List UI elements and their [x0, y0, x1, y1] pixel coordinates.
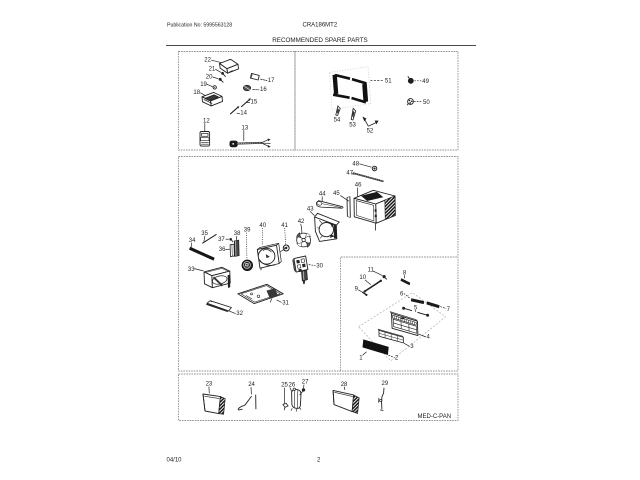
svg-text:15: 15: [251, 99, 258, 105]
svg-text:19: 19: [200, 82, 207, 88]
svg-text:29: 29: [382, 381, 389, 387]
svg-text:46: 46: [355, 183, 362, 189]
svg-text:23: 23: [206, 382, 213, 388]
svg-text:13: 13: [242, 125, 249, 131]
svg-text:39: 39: [244, 228, 251, 234]
svg-text:22: 22: [204, 58, 211, 64]
svg-text:18: 18: [193, 90, 200, 96]
svg-text:32: 32: [236, 311, 243, 317]
svg-text:38: 38: [234, 231, 241, 237]
svg-text:42: 42: [298, 219, 305, 225]
svg-text:31: 31: [282, 301, 289, 307]
svg-text:26: 26: [289, 383, 296, 389]
svg-text:36: 36: [219, 247, 226, 253]
svg-text:30: 30: [316, 263, 323, 269]
svg-text:45: 45: [333, 191, 340, 197]
svg-text:Publication No: 5995563128: Publication No: 5995563128: [167, 23, 232, 29]
svg-text:17: 17: [268, 78, 275, 84]
svg-text:04/10: 04/10: [167, 458, 183, 464]
svg-text:54: 54: [334, 118, 341, 124]
svg-text:50: 50: [423, 100, 430, 106]
svg-text:21: 21: [209, 67, 216, 73]
svg-text:48: 48: [352, 162, 359, 168]
svg-text:41: 41: [281, 223, 288, 229]
svg-text:24: 24: [248, 382, 255, 388]
svg-text:20: 20: [206, 75, 213, 81]
svg-text:25: 25: [281, 383, 288, 389]
svg-text:RECOMMENDED SPARE PARTS: RECOMMENDED SPARE PARTS: [272, 37, 368, 44]
svg-text:49: 49: [422, 79, 429, 85]
svg-text:53: 53: [349, 122, 356, 128]
svg-text:12: 12: [203, 119, 210, 125]
svg-text:27: 27: [302, 380, 309, 386]
svg-text:11: 11: [368, 268, 375, 274]
svg-text:52: 52: [367, 129, 374, 135]
svg-text:37: 37: [218, 237, 225, 243]
svg-text:CRA186MT2: CRA186MT2: [303, 23, 338, 29]
svg-text:40: 40: [259, 223, 266, 229]
svg-text:MED-C-PAN: MED-C-PAN: [418, 414, 452, 420]
svg-text:51: 51: [385, 78, 392, 84]
svg-text:33: 33: [188, 267, 195, 273]
svg-text:16: 16: [260, 87, 267, 93]
svg-text:34: 34: [189, 238, 196, 244]
svg-text:14: 14: [240, 111, 247, 117]
